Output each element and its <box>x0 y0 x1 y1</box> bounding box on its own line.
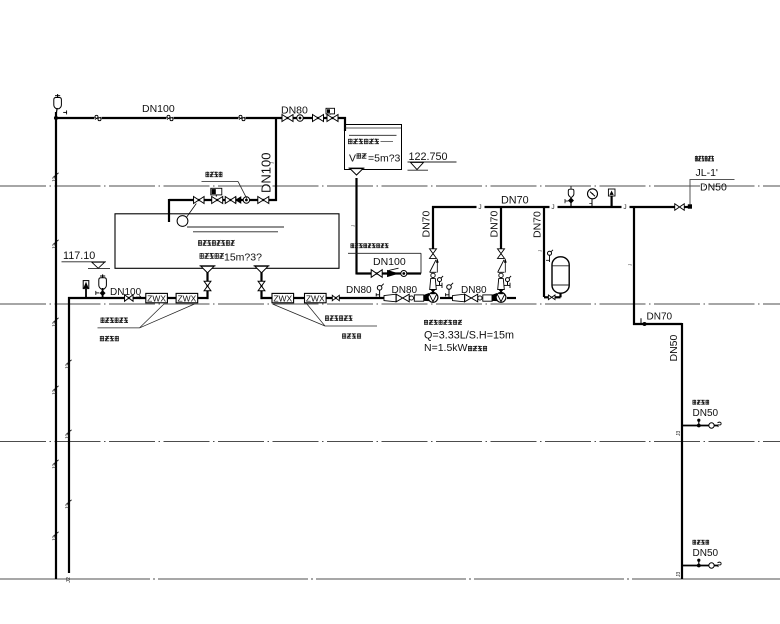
svg-text:DN100: DN100 <box>259 153 274 193</box>
svg-text:J3: J3 <box>53 536 59 542</box>
svg-text:15m?3?: 15m?3? <box>224 251 262 263</box>
svg-text:J: J <box>551 204 554 211</box>
svg-text:J2: J2 <box>66 364 72 370</box>
svg-text:J: J <box>628 264 633 266</box>
svg-text:J: J <box>478 204 481 211</box>
svg-text:DN100: DN100 <box>142 103 175 115</box>
svg-text:Q=3.33L/S.H=15m: Q=3.33L/S.H=15m <box>424 330 514 342</box>
svg-text:DN80: DN80 <box>392 285 418 296</box>
svg-text:DN100: DN100 <box>110 287 142 298</box>
svg-text:ZWX: ZWX <box>306 293 325 303</box>
svg-text:J3: J3 <box>53 177 59 183</box>
svg-text:DN50: DN50 <box>700 182 727 194</box>
svg-text:V: V <box>349 153 356 165</box>
svg-text:J2: J2 <box>66 577 72 583</box>
svg-text:DN80: DN80 <box>346 285 372 296</box>
svg-text:DN70: DN70 <box>532 211 544 238</box>
svg-text:DN50: DN50 <box>668 334 680 361</box>
svg-text:DN50: DN50 <box>693 408 719 419</box>
svg-text:J3: J3 <box>53 244 59 250</box>
svg-text:DN50: DN50 <box>693 548 719 559</box>
svg-text:ZWX: ZWX <box>273 293 292 303</box>
svg-text:DN70: DN70 <box>501 194 529 206</box>
svg-text:J: J <box>351 225 356 227</box>
svg-text:J3: J3 <box>53 390 59 396</box>
svg-text:DN70: DN70 <box>489 210 501 237</box>
svg-text:DN80: DN80 <box>461 285 487 296</box>
svg-text:JL-1': JL-1' <box>696 167 718 179</box>
svg-text:N=1.5kW: N=1.5kW <box>424 342 468 354</box>
svg-text:J: J <box>623 204 626 211</box>
svg-text:J3: J3 <box>676 572 682 578</box>
svg-text:=5m?3: =5m?3 <box>368 153 401 165</box>
svg-text:J: J <box>270 162 275 164</box>
svg-text:J3: J3 <box>53 322 59 328</box>
svg-text:ZWX: ZWX <box>147 293 166 303</box>
svg-text:DN80: DN80 <box>281 105 308 117</box>
svg-text:DN100: DN100 <box>373 256 406 268</box>
svg-text:117.10: 117.10 <box>63 250 95 262</box>
svg-text:ZWX: ZWX <box>177 293 196 303</box>
svg-text:J3: J3 <box>53 464 59 470</box>
svg-text:DN70: DN70 <box>421 210 433 237</box>
svg-text:J: J <box>538 250 543 252</box>
svg-text:J2: J2 <box>66 434 72 440</box>
svg-text:DN70: DN70 <box>647 312 673 323</box>
svg-text:J3: J3 <box>676 431 682 437</box>
svg-text:J2: J2 <box>66 504 72 510</box>
svg-text:122.750: 122.750 <box>409 151 448 163</box>
